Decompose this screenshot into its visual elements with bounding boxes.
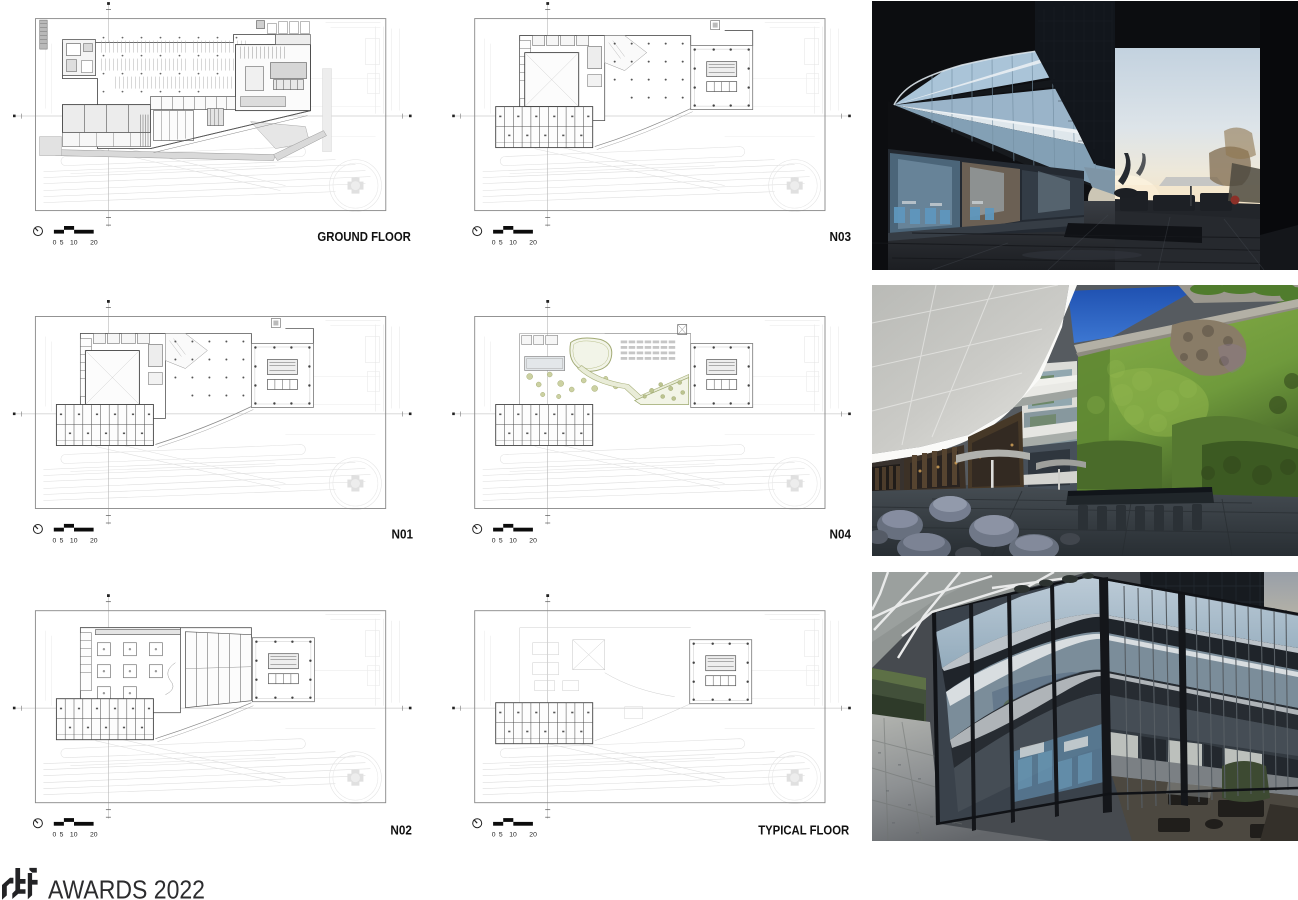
svg-text:N02: N02 [390,823,412,838]
svg-text:TYPICAL FLOOR: TYPICAL FLOOR [758,823,850,838]
svg-text:N01: N01 [392,527,414,542]
svg-text:N04: N04 [830,527,852,542]
svg-text:GROUND FLOOR: GROUND FLOOR [317,229,411,244]
svg-text:AWARDS 2022: AWARDS 2022 [48,875,205,900]
svg-text:N03: N03 [830,229,852,244]
